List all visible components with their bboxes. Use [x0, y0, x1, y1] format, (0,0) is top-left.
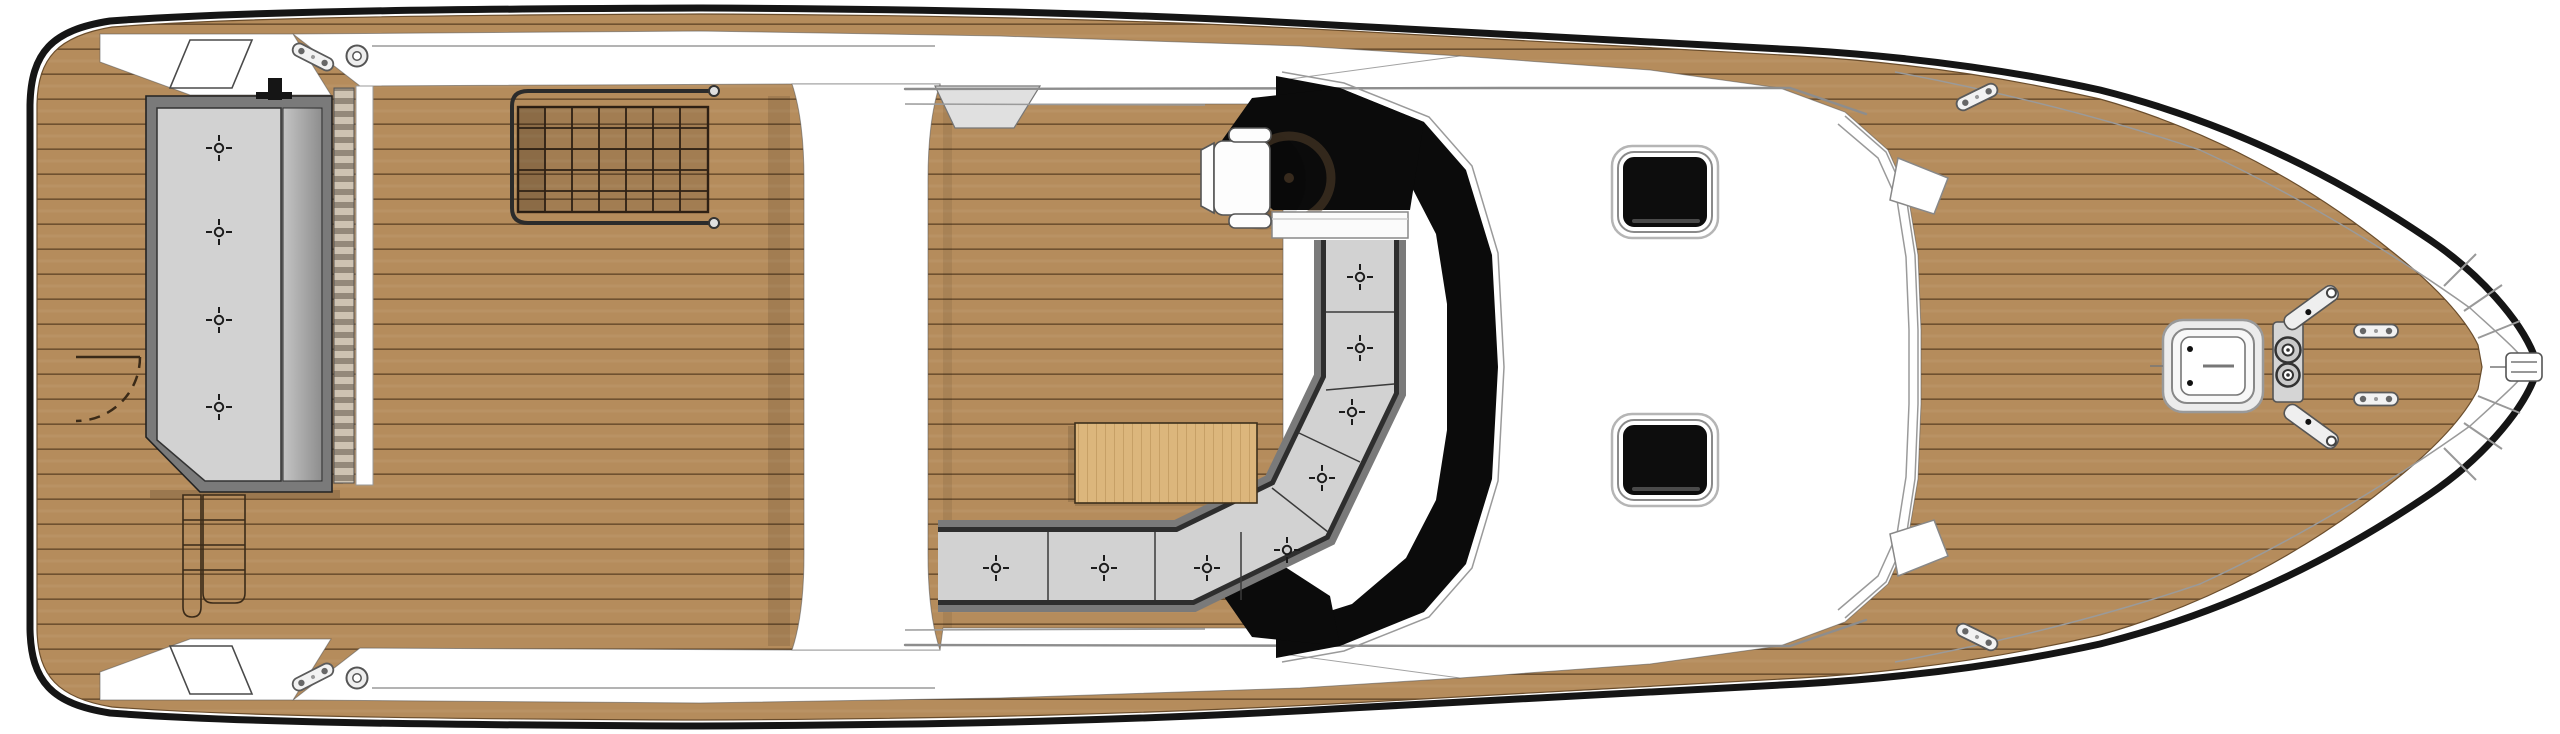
- deck-plan-svg: [0, 0, 2560, 734]
- yacht-deck-plan: [0, 0, 2560, 734]
- side-ladder-treads: [334, 88, 354, 483]
- dinette-table: [1075, 423, 1257, 503]
- roof-skylight-aft: [1612, 146, 1718, 238]
- coaming-strip: [356, 86, 373, 485]
- walkthrough-band: [792, 84, 940, 650]
- transom-sunpad: [146, 78, 332, 492]
- roof-skylight-fwd: [1612, 414, 1718, 506]
- anchor-roller: [2506, 353, 2542, 381]
- boarding-steps: [183, 495, 245, 617]
- rail-knob: [709, 218, 719, 228]
- helm-console: [1272, 212, 1408, 238]
- bow-deck-hatch: [2150, 320, 2263, 412]
- rail-knob: [709, 86, 719, 96]
- deck-hatch-grid: [512, 86, 719, 228]
